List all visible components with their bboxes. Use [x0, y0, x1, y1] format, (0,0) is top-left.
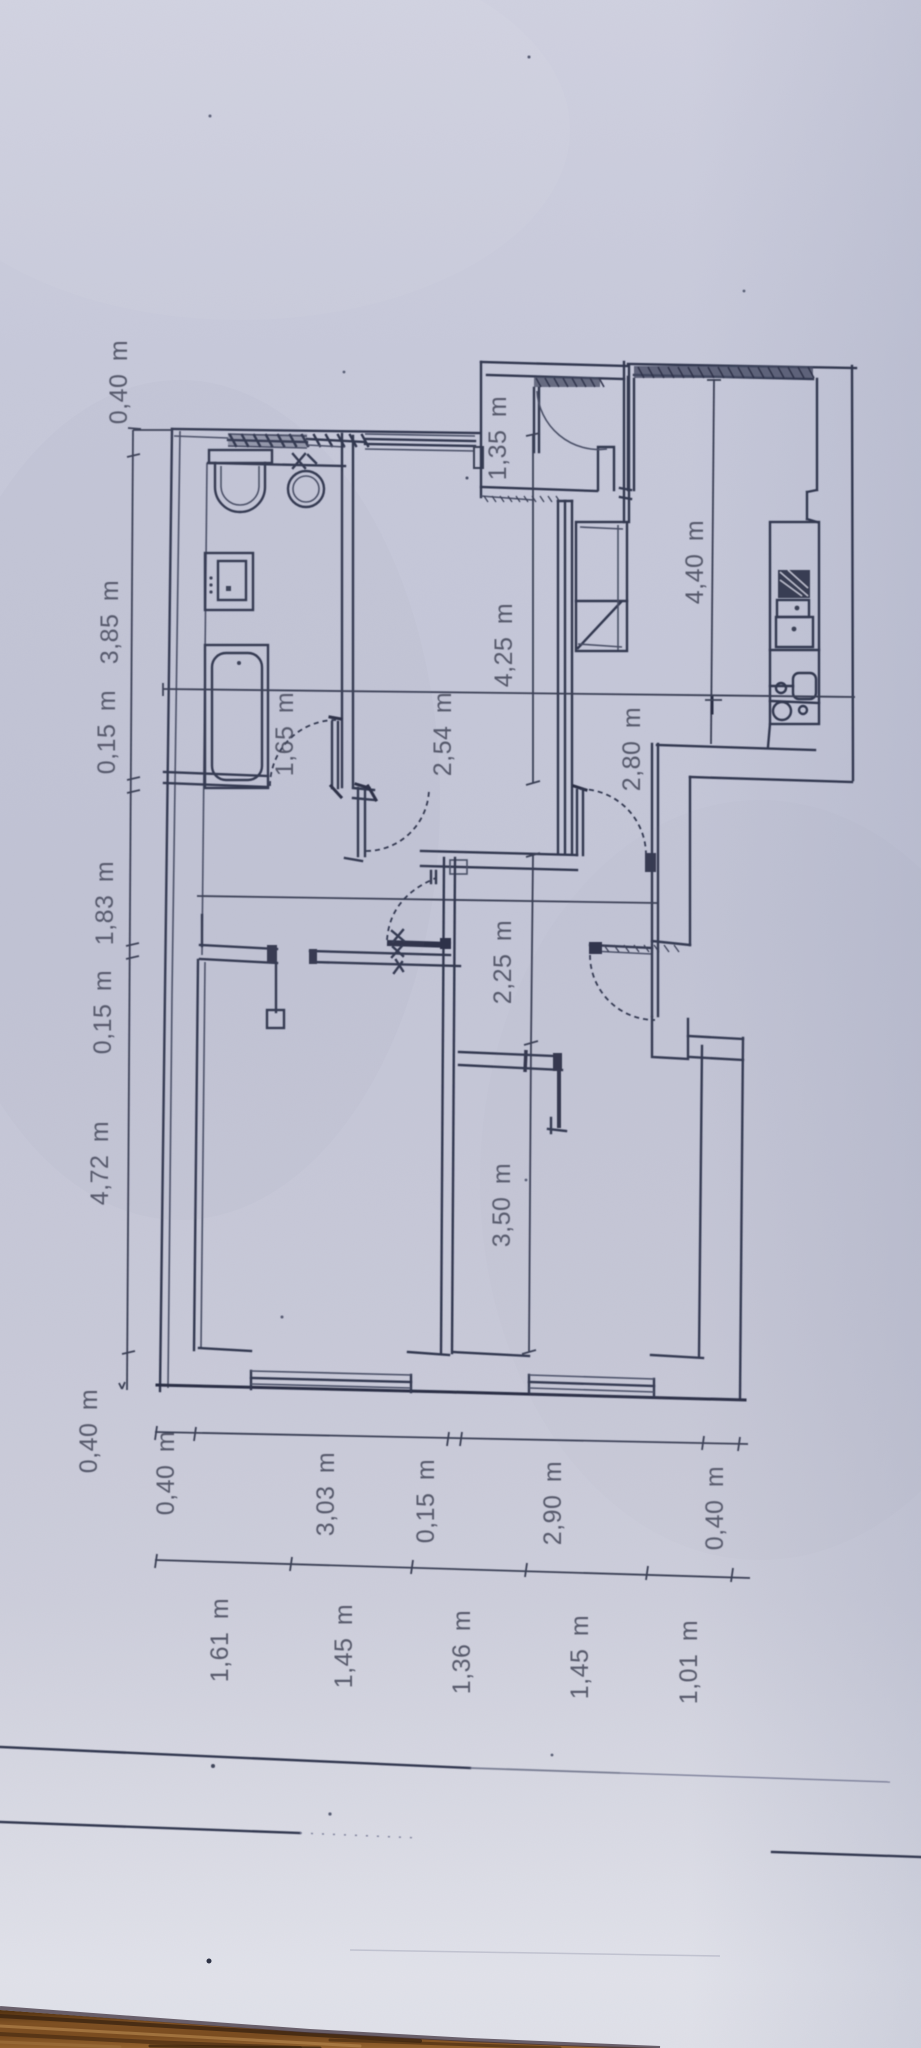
svg-text:2,25 m: 2,25 m: [489, 920, 517, 1004]
svg-text:1,45 m: 1,45 m: [566, 1615, 594, 1699]
svg-text:0,40 m: 0,40 m: [152, 1431, 180, 1515]
svg-text:2,90 m: 2,90 m: [539, 1461, 567, 1545]
svg-text:1,35 m: 1,35 m: [484, 396, 512, 480]
svg-text:4,25 m: 4,25 m: [490, 603, 518, 687]
svg-text:3,03 m: 3,03 m: [312, 1452, 340, 1536]
svg-text:1,36 m: 1,36 m: [448, 1610, 476, 1694]
svg-text:0,15 m: 0,15 m: [412, 1459, 440, 1543]
svg-text:2,80 m: 2,80 m: [618, 707, 646, 791]
svg-text:4,40 m: 4,40 m: [681, 520, 709, 604]
svg-text:1,01 m: 1,01 m: [675, 1620, 703, 1704]
svg-text:0,40 m: 0,40 m: [75, 1389, 103, 1473]
svg-text:1,61 m: 1,61 m: [206, 1598, 234, 1682]
svg-text:1,45 m: 1,45 m: [330, 1604, 358, 1688]
